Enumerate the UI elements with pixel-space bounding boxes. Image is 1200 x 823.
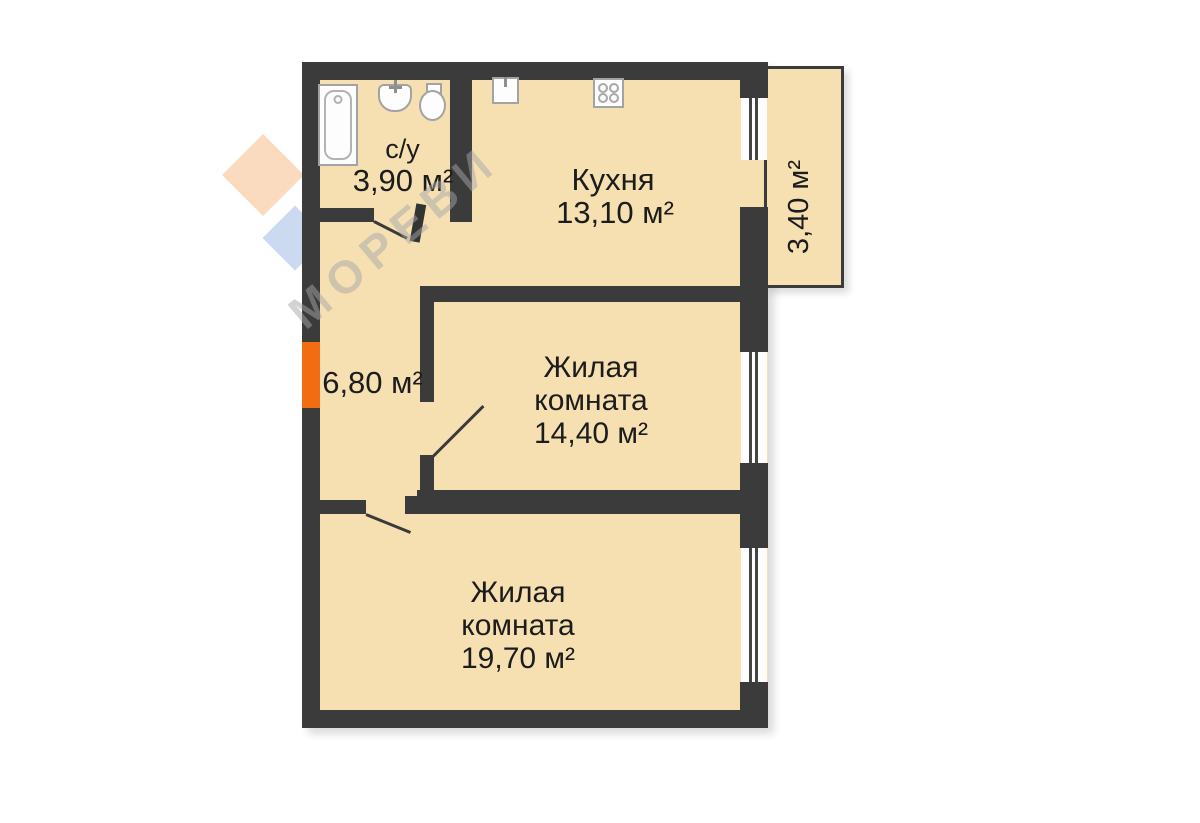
living2-name-line2: комната bbox=[418, 609, 618, 642]
stove-icon bbox=[593, 78, 624, 108]
bathtub-drain bbox=[334, 95, 343, 104]
window-glass-line bbox=[755, 98, 758, 160]
kitchen-name-label: Кухня bbox=[538, 163, 688, 196]
kitchen-area-label: 13,10 м² bbox=[535, 196, 695, 229]
stove-burner bbox=[609, 83, 619, 93]
window-glass-line bbox=[749, 98, 752, 160]
floor-plan: 3,40 м² bbox=[0, 0, 1200, 823]
wall-room2-door-stub bbox=[405, 496, 419, 514]
living1-area: 14,40 м² bbox=[491, 417, 691, 450]
window-glass-line bbox=[749, 352, 752, 463]
window-glass-line bbox=[755, 352, 758, 463]
wall-hallway-bottom bbox=[320, 500, 366, 514]
living1-name-line1: Жилая bbox=[491, 351, 691, 384]
toilet-icon bbox=[419, 90, 446, 121]
watermark-diamond-peach bbox=[222, 134, 304, 216]
wall-kitchen-bottom bbox=[420, 286, 750, 302]
living2-name-line1: Жилая bbox=[418, 576, 618, 609]
wall-room1-bottom bbox=[417, 490, 750, 514]
living2-area: 19,70 м² bbox=[418, 642, 618, 675]
wall-right-4 bbox=[740, 682, 768, 710]
wall-right-1 bbox=[740, 80, 768, 98]
living2-label: Жилая комната 19,70 м² bbox=[418, 576, 618, 675]
wall-bottom bbox=[302, 710, 768, 728]
living1-name-line2: комната bbox=[491, 384, 691, 417]
window-icon-living1 bbox=[741, 352, 767, 463]
stove-burner bbox=[598, 93, 608, 103]
wall-right-2 bbox=[740, 207, 768, 352]
stove-burner bbox=[609, 93, 619, 103]
wall-bathroom-bottom bbox=[320, 208, 374, 222]
window-glass-line bbox=[755, 548, 758, 682]
window-glass-line bbox=[749, 548, 752, 682]
hallway-area-label: 6,80 м² bbox=[300, 366, 445, 399]
washbasin-faucet-cross bbox=[389, 86, 402, 89]
wall-top bbox=[302, 62, 768, 80]
living1-label: Жилая комната 14,40 м² bbox=[491, 351, 691, 450]
stove-burner bbox=[598, 83, 608, 93]
window-icon-kitchen-balcony bbox=[741, 98, 767, 160]
kitchen-sink-tap bbox=[504, 77, 507, 87]
window-icon-living2 bbox=[741, 548, 767, 682]
balcony-area-label: 3,40 м² bbox=[784, 137, 814, 277]
